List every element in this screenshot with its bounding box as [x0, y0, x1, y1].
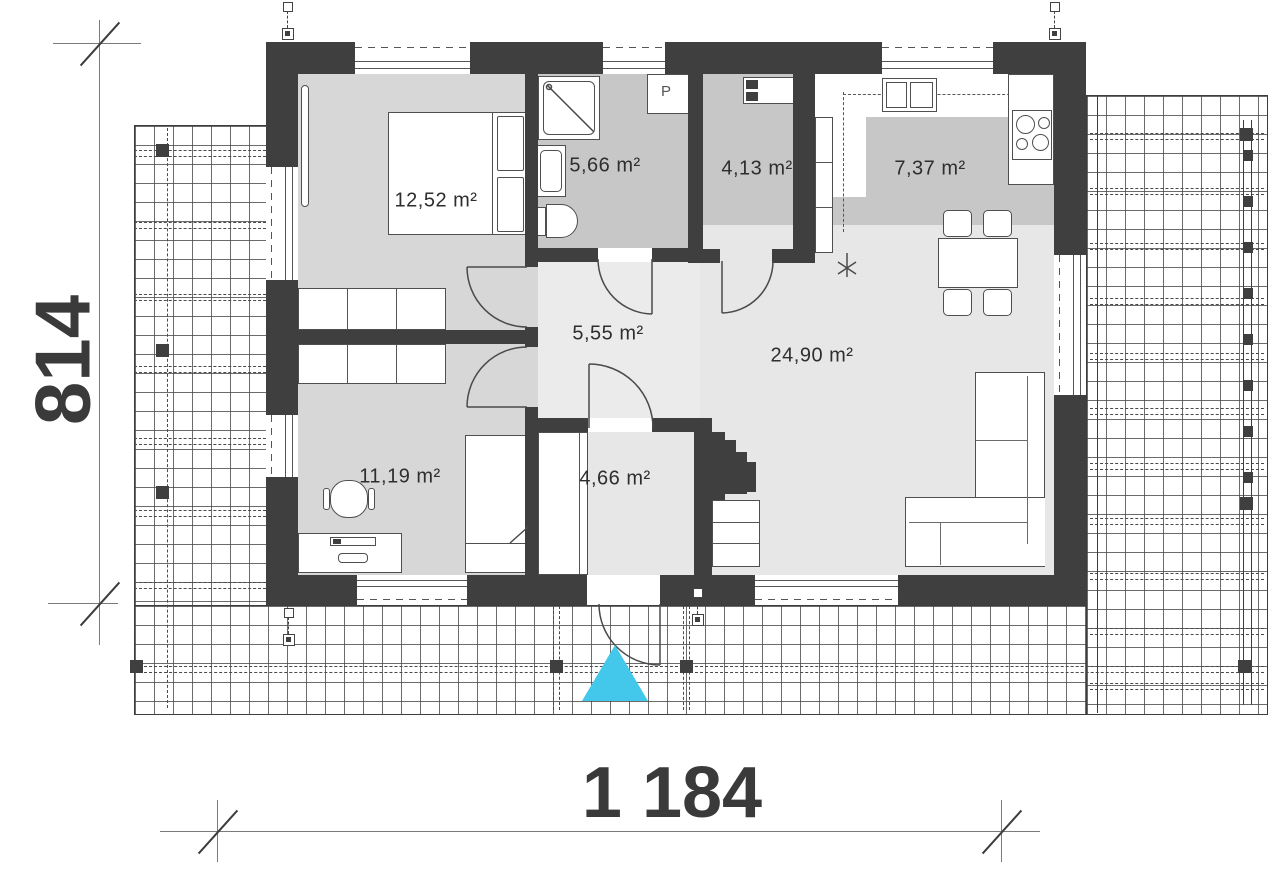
- pergola-post: [1238, 660, 1251, 673]
- rafter-mark: [1244, 334, 1253, 345]
- window-kitchen: [882, 42, 993, 74]
- pergola-beam: [134, 510, 266, 517]
- floor-kitchen: [815, 197, 1054, 225]
- pergola-post: [680, 660, 693, 673]
- pergola-beam: [134, 438, 266, 445]
- wall: [688, 74, 703, 248]
- sofa: [905, 497, 1045, 567]
- rafter-mark: [1244, 242, 1253, 253]
- pergola-beam: [1090, 463, 1264, 470]
- entrance-marker: [582, 645, 648, 701]
- window-bedroom: [355, 42, 470, 74]
- wall: [525, 74, 538, 267]
- window-living-south: [755, 575, 898, 605]
- pergola-beam: [553, 606, 560, 710]
- pillow: [497, 116, 524, 171]
- pergola-edge-beam: [1251, 120, 1252, 705]
- wall: [538, 248, 598, 262]
- boiler-control: [746, 92, 758, 101]
- fireplace: [747, 462, 756, 492]
- pillow: [497, 177, 524, 232]
- window-bathroom: [603, 42, 665, 74]
- upper-cabinet-outline: [843, 92, 844, 232]
- roof-edge-line: [167, 128, 168, 708]
- chair: [943, 289, 972, 316]
- window-office-west: [266, 415, 298, 477]
- pergola-beam: [1090, 353, 1264, 360]
- sofa-cushion-line: [976, 440, 1027, 441]
- entrance-door-opening: [587, 575, 660, 605]
- wall: [266, 280, 298, 415]
- downspout-icon: [282, 2, 293, 40]
- pergola-beam: [1090, 133, 1264, 140]
- dimension-tick: [48, 603, 118, 604]
- wall: [266, 477, 298, 605]
- washing-machine-label: P: [661, 83, 671, 100]
- pergola-beam: [1090, 518, 1264, 525]
- wall: [266, 42, 298, 167]
- room-label-storage: 4,13 m²: [721, 158, 792, 181]
- pergola-beam: [1090, 628, 1264, 635]
- fireplace: [725, 440, 736, 494]
- wall: [660, 575, 755, 605]
- downspout-icon: [692, 588, 703, 626]
- wall: [1054, 395, 1086, 605]
- deck-joist-line: [1097, 95, 1098, 713]
- wall: [470, 42, 603, 74]
- pergola-beam: [1090, 188, 1264, 195]
- wall: [694, 418, 712, 575]
- pergola-beam: [134, 150, 266, 157]
- bed-divider-line: [492, 113, 493, 234]
- pergola-beam: [683, 606, 690, 710]
- hob-burner: [1016, 115, 1035, 134]
- room-label-living: 24,90 m²: [771, 345, 854, 368]
- wardrobe-office: [298, 344, 446, 384]
- wall: [525, 418, 588, 432]
- wall: [665, 42, 882, 74]
- chair: [983, 210, 1012, 237]
- window-office-south: [357, 575, 467, 605]
- sink-bowl: [910, 82, 933, 108]
- room-label-kitchen: 7,37 m²: [894, 158, 965, 181]
- wall: [793, 74, 815, 249]
- pergola-beam: [1090, 683, 1264, 690]
- roof-eave-line: [134, 666, 1264, 673]
- rafter-mark: [1244, 426, 1253, 437]
- pergola-post: [1240, 497, 1253, 510]
- wall: [266, 330, 538, 344]
- room-label-hall: 5,55 m²: [572, 323, 643, 346]
- pergola-post: [156, 344, 169, 357]
- wall: [772, 249, 815, 263]
- tall-cabinets: [815, 117, 833, 253]
- wall: [467, 575, 587, 605]
- keyboard: [338, 553, 368, 563]
- shower-tray: [543, 81, 595, 135]
- pergola-beam: [134, 222, 266, 229]
- wall: [525, 432, 538, 575]
- sink-bowl: [886, 82, 907, 108]
- chair: [943, 210, 972, 237]
- sofa-seat-line: [909, 522, 1027, 523]
- dimension-height-label: 814: [18, 295, 109, 425]
- rafter-mark: [1244, 380, 1253, 391]
- boiler-control: [746, 80, 758, 89]
- pergola-beam: [134, 294, 266, 301]
- rafter-mark: [1244, 196, 1253, 207]
- rafter-mark: [1244, 288, 1253, 299]
- pergola-beam: [134, 582, 266, 589]
- floor-plan: P: [0, 0, 1280, 894]
- bed-foot-line: [466, 543, 529, 544]
- dining-table: [938, 238, 1018, 288]
- floor-vestibule: [588, 432, 694, 575]
- pergola-beam: [1090, 298, 1264, 305]
- hearth-steps: [712, 500, 760, 567]
- sofa-cushion-line: [940, 523, 941, 565]
- pergola-beam: [134, 366, 266, 373]
- wardrobe-bedroom: [298, 288, 446, 330]
- chair: [983, 289, 1012, 316]
- pergola-beam: [1090, 573, 1264, 580]
- fireplace: [736, 452, 747, 494]
- pergola-beam: [1090, 408, 1264, 415]
- downspout-icon: [1049, 2, 1060, 40]
- vestibule-closet: [538, 432, 588, 575]
- room-label-office: 11,19 m²: [359, 466, 440, 489]
- single-bed: [465, 435, 530, 573]
- pergola-post: [550, 660, 563, 673]
- wall: [688, 249, 720, 263]
- pergola-post: [1240, 128, 1253, 141]
- room-label-vestibule: 4,66 m²: [579, 468, 650, 491]
- fireplace: [712, 432, 725, 504]
- rafter-mark: [1244, 472, 1253, 483]
- rafter-mark: [1244, 150, 1253, 161]
- office-chair-arm: [323, 488, 330, 510]
- pergola-edge-beam: [1243, 120, 1244, 705]
- hob-burner: [1038, 117, 1050, 129]
- dimension-width-label: 1 184: [582, 752, 762, 834]
- room-label-bedroom: 12,52 m²: [395, 190, 478, 213]
- washbasin-bowl: [540, 150, 562, 192]
- pergola-post: [156, 144, 169, 157]
- sliding-door-terrace: [1054, 255, 1086, 395]
- window-bedroom-west: [266, 167, 298, 280]
- hob-burner: [1032, 134, 1049, 151]
- downspout-icon: [283, 608, 294, 646]
- hob-burner: [1016, 138, 1028, 150]
- upper-cabinet-outline: [843, 94, 1035, 95]
- pergola-post: [130, 660, 143, 673]
- room-label-bathroom: 5,66 m²: [569, 155, 640, 178]
- pergola-post: [156, 486, 169, 499]
- radiator: [301, 85, 309, 207]
- monitor-stand: [333, 539, 341, 544]
- wall: [1054, 42, 1086, 255]
- office-chair-arm: [368, 488, 375, 510]
- sofa-seat-line: [1027, 376, 1028, 544]
- pergola-beam: [1090, 243, 1264, 250]
